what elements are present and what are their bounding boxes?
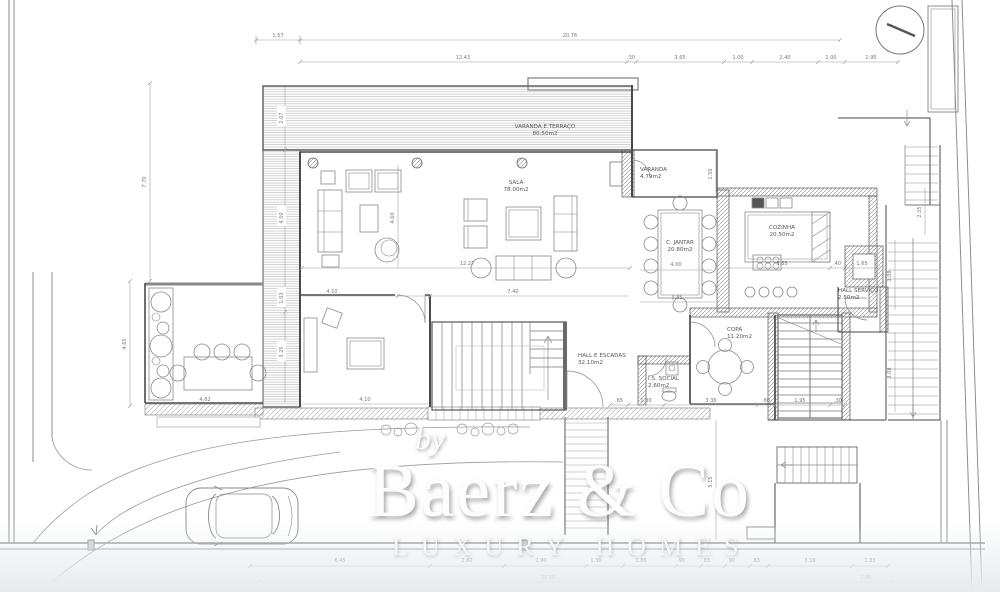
room-label-is-social: I.S. SOCIAL: [648, 376, 680, 382]
dim-text: .30: [627, 55, 635, 61]
room-label-terraco: VARANDA E TERRAÇO: [515, 124, 576, 130]
dim-text: 7.40: [507, 289, 518, 295]
dim-text: 3.08: [887, 270, 893, 281]
car: [186, 486, 298, 546]
room-label-sala: SALA: [509, 180, 524, 186]
dim-text: 5.15: [708, 476, 714, 487]
staircase-service: [778, 315, 842, 418]
dim-text: 2.60: [461, 558, 472, 564]
dim-text: 3.25: [279, 346, 285, 357]
room-label-hall-servico: HALL SERVIÇO: [838, 288, 879, 294]
staircase-exterior-lower: [777, 447, 857, 483]
dim-text: 22.35: [541, 575, 555, 581]
dim-text: 4.60: [390, 212, 396, 223]
dim-text: 1.86: [635, 558, 646, 564]
dim-text: 3.85: [776, 261, 787, 267]
north-symbol: [876, 6, 924, 54]
dim-text: .83: [702, 558, 710, 564]
dim-text: 1.00: [825, 55, 836, 61]
dim-text: 3.36: [705, 398, 716, 404]
dim-text: 2.25: [917, 206, 923, 217]
room-area-is-social: 2.60m2: [648, 383, 669, 389]
room-area-hall-escadas: 32.10m2: [578, 360, 603, 366]
dim-text: 6.45: [334, 558, 345, 564]
dim-text: 4.62: [199, 397, 210, 403]
dim-text: .60: [762, 398, 770, 404]
room-label-varanda: VARANDA: [640, 167, 667, 173]
dim-text: 1.80: [860, 575, 871, 581]
dim-text: .83: [752, 558, 760, 564]
walkway: [145, 404, 710, 427]
room-area-terraco: 80.50m2: [532, 131, 557, 137]
garden-stones: [381, 423, 518, 436]
dim-text: 1.50: [708, 168, 714, 179]
dim-text: 3.65: [674, 55, 685, 61]
dim-text: 4.00: [670, 262, 681, 268]
room-label-cozinha: COZINHA: [769, 225, 795, 231]
dim-text: 3.08: [887, 367, 893, 378]
dim-text: 12.27: [460, 261, 474, 267]
room-label-copa: COPA: [727, 327, 742, 333]
dim-text: 1.33: [864, 558, 875, 564]
dim-text: 4.50: [279, 212, 285, 223]
dim-text: 12.43: [456, 55, 470, 61]
room-area-cozinha: 20.50m2: [769, 232, 794, 238]
staircase-main: [432, 322, 567, 410]
dim-text: 7.70: [142, 176, 148, 187]
dim-text: 2.40: [779, 55, 790, 61]
dim-text: 1.65: [856, 261, 867, 267]
floor-plan-svg: 1.57 20.76 12.43 .30 3.65 1.00 2.40 1.00…: [0, 0, 1000, 592]
room-area-hall-servico: 2.50m2: [838, 295, 859, 301]
dim-text: .65: [615, 398, 623, 404]
dim-text: 4.65: [122, 338, 128, 349]
dim-text: .30: [834, 398, 842, 404]
dim-text: .40: [833, 261, 841, 267]
dim-text: 20.76: [563, 33, 577, 39]
dim-text: 1.95: [865, 55, 876, 61]
dim-text: 4.10: [326, 289, 337, 295]
furniture-copa: [697, 339, 754, 396]
floor-plan: 1.57 20.76 12.43 .30 3.65 1.00 2.40 1.00…: [0, 0, 1000, 592]
dim-text: 1.00: [732, 55, 743, 61]
furniture-kitchen: [745, 198, 830, 297]
room-area-copa: 11.20m2: [727, 334, 752, 340]
dim-text: .90: [677, 558, 685, 564]
dim-text: .90: [727, 558, 735, 564]
room-area-sala: 78.00m2: [503, 187, 528, 193]
columns: [308, 158, 527, 168]
dim-text: 2.90: [535, 558, 546, 564]
room-label-hall-escadas: HALL E ESCADAS: [578, 353, 626, 359]
dim-text: 3.16: [804, 558, 815, 564]
room-area-varanda: 4.79m2: [640, 174, 661, 180]
dim-text: 1.95: [794, 398, 805, 404]
furniture-sala: [318, 170, 577, 280]
room-area-jantar: 20.80m2: [667, 247, 692, 253]
dim-text: 1.57: [272, 33, 283, 39]
dim-text: 4.10: [359, 397, 370, 403]
room-label-jantar: C. JANTAR: [666, 240, 694, 246]
dim-text: 1.30: [640, 398, 651, 404]
dim-text: 3.85: [671, 295, 682, 301]
furniture-family-room: [304, 308, 384, 372]
dim-text: 2.07: [279, 112, 285, 123]
dim-text: 1.30: [590, 558, 601, 564]
entry-path: [565, 417, 608, 535]
dim-text: 1.03: [279, 292, 285, 303]
furniture-left-room: [149, 288, 266, 400]
